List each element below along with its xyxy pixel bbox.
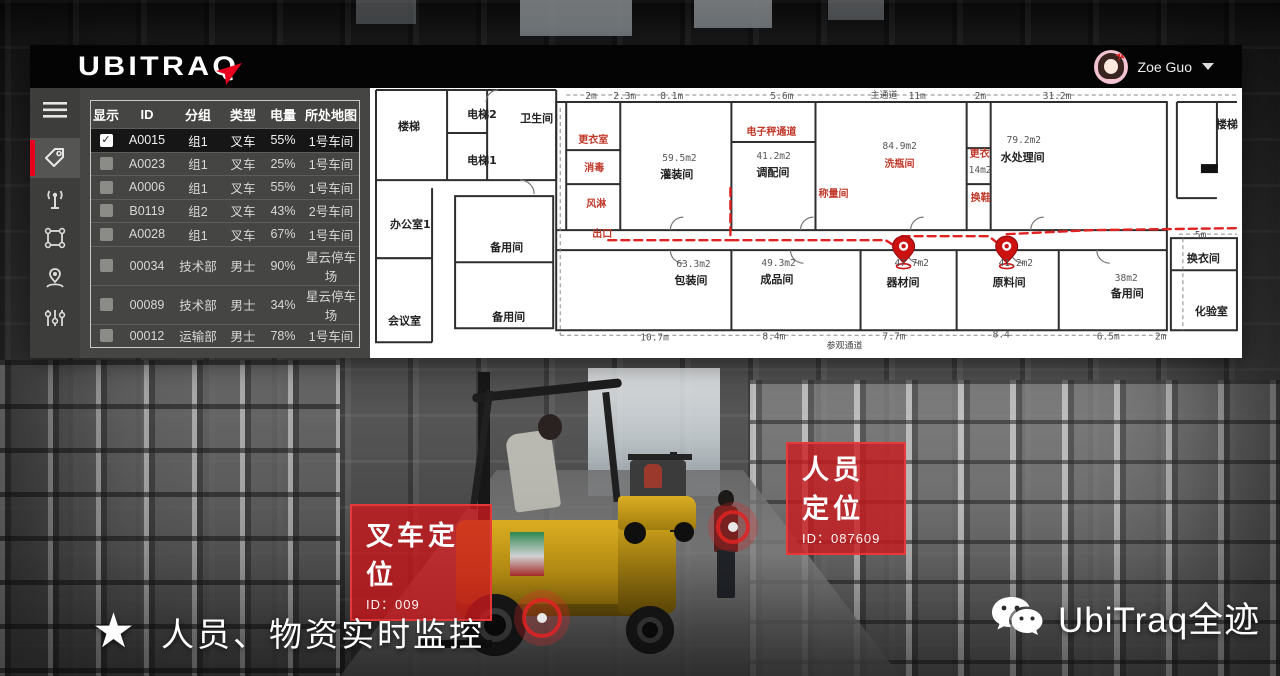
sidebar-item-signal[interactable] [30, 178, 80, 218]
forklift-location-marker [522, 598, 562, 638]
floorplan-label: 14m2 [969, 165, 992, 176]
col-battery: 电量 [263, 105, 303, 124]
floorplan-label: 成品间 [760, 272, 793, 286]
cell-id: B0119 [121, 204, 173, 218]
checkbox-unchecked[interactable] [100, 204, 113, 217]
col-id: ID [121, 107, 173, 122]
floorplan-label: 31.2m [1043, 91, 1072, 102]
floorplan-doors [486, 90, 1110, 263]
floorplan-label: 10.7m [640, 332, 669, 343]
person-tracking-label: 人员定位 ID：087609 [786, 442, 906, 555]
cell-battery: 78% [263, 329, 303, 343]
floorplan-label: 调配间 [756, 165, 789, 179]
tracking-route-path [608, 188, 1237, 250]
checkbox-unchecked[interactable] [100, 157, 113, 170]
user-menu[interactable]: Zoe Guo [1094, 50, 1214, 84]
cell-type: 叉车 [223, 154, 263, 173]
antenna-signal-icon [43, 187, 67, 209]
equalizer-icon [44, 307, 66, 329]
col-display: 显示 [91, 105, 121, 124]
floorplan-label: 79.2m2 [1007, 135, 1041, 146]
table-row[interactable]: A0006组1叉车55%1号车间 [91, 175, 359, 199]
hamburger-icon [43, 102, 67, 118]
floorplan-label: 主通道 [871, 89, 898, 101]
floorplan-label: 更衣 [970, 147, 990, 160]
cell-map: 2号车间 [303, 201, 359, 220]
logo: UBITRAQ [78, 51, 248, 82]
hamburger-menu-button[interactable] [30, 88, 80, 132]
logo-arrow-icon [216, 63, 242, 85]
floorplan-label: 备用间 [489, 240, 523, 254]
cell-id: 00089 [121, 298, 173, 312]
floorplan-svg: 2m2.3m8.1m5.6m主通道11m2m31.2m5m楼梯电梯2电梯1卫生间… [370, 88, 1242, 358]
floorplan-label: 8.4 [993, 329, 1010, 340]
floorplan-label: 2m [1155, 331, 1167, 342]
floorplan-label: 电梯1 [467, 153, 497, 167]
floorplan-label: 电子秤通道 [746, 125, 796, 138]
checkbox-unchecked[interactable] [100, 181, 113, 194]
cell-battery: 55% [263, 180, 303, 194]
table-header: 显示 ID 分组 类型 电量 所处地图 [91, 101, 359, 128]
floorplan-label: 洗瓶间 [885, 157, 915, 170]
cell-map: 星云停车场 [303, 247, 359, 285]
floorplan-label: 11m [909, 91, 926, 102]
floorplan-label: 消毒 [584, 161, 604, 174]
checkbox-unchecked[interactable] [100, 329, 113, 342]
floorplan-label: 电梯2 [467, 107, 497, 121]
table-row[interactable]: ✓A0015组1叉车55%1号车间 [91, 128, 359, 152]
app-window: UBITRAQ Zoe Guo [30, 45, 1242, 358]
cell-type: 叉车 [223, 225, 263, 244]
checkbox-checked[interactable]: ✓ [100, 134, 113, 147]
floorplan-label: 更衣室 [578, 133, 608, 146]
person-tag-id: ID：087609 [802, 528, 890, 547]
person-tag-title: 人员定位 [802, 448, 890, 526]
floorplan-label: 化验室 [1195, 304, 1228, 318]
floorplan-walls [376, 90, 1237, 342]
floorplan-label: 灌装间 [660, 167, 693, 181]
cell-group: 组1 [173, 131, 223, 150]
sidebar-item-zone[interactable] [30, 218, 80, 258]
cell-type: 叉车 [223, 131, 263, 150]
floorplan-label: 原料间 [993, 275, 1026, 289]
floorplan-label: 7.7m [883, 331, 906, 342]
table-row[interactable]: A0028组1叉车67%1号车间 [91, 222, 359, 246]
floorplan-label: 8.4m [762, 331, 785, 342]
cell-group: 技术部 [173, 295, 223, 314]
app-header: UBITRAQ Zoe Guo [30, 45, 1242, 88]
floorplan-label: 出口 [592, 227, 612, 240]
forklift-tag-title: 叉车定位 [366, 514, 476, 592]
floorplan-label: 5.6m [770, 91, 793, 102]
sidebar-item-tag-tracking[interactable] [30, 138, 80, 178]
floorplan-label: 称量间 [818, 187, 848, 200]
floorplan-label: 63.3m2 [676, 259, 710, 270]
cell-id: A0015 [121, 133, 173, 147]
slogan: ★ 人员、物资实时监控 [92, 608, 485, 656]
forklift-tracking-label: 叉车定位 ID：009 [350, 504, 492, 621]
star-icon: ★ [92, 608, 135, 656]
cell-type: 叉车 [223, 178, 263, 197]
checkbox-unchecked[interactable] [100, 298, 113, 311]
col-map: 所处地图 [303, 105, 359, 124]
floorplan-label: 参观通道 [826, 339, 862, 351]
cell-battery: 67% [263, 227, 303, 241]
floorplan-label: 风淋 [586, 197, 606, 210]
cell-battery: 90% [263, 259, 303, 273]
person-pin-icon [43, 267, 67, 289]
floorplan-map[interactable]: 2m2.3m8.1m5.6m主通道11m2m31.2m5m楼梯电梯2电梯1卫生间… [370, 88, 1242, 358]
wechat-icon [990, 595, 1046, 641]
cell-battery: 34% [263, 298, 303, 312]
col-group: 分组 [173, 105, 223, 124]
table-row[interactable]: A0023组1叉车25%1号车间 [91, 152, 359, 176]
cell-id: A0006 [121, 180, 173, 194]
floorplan-label: 38m2 [1115, 273, 1138, 284]
app-body: 显示 ID 分组 类型 电量 所处地图 ✓A0015组1叉车55%1号车间A00… [30, 88, 1242, 358]
floorplan-label: 备用间 [1110, 286, 1144, 300]
floorplan-label: 办公室1 [390, 217, 431, 231]
floorplan-label: 换衣间 [1187, 251, 1220, 265]
floorplan-label: 器材间 [886, 275, 920, 289]
cell-type: 男士 [223, 256, 263, 275]
floorplan-label: 41.2m2 [756, 151, 790, 162]
floorplan-label: 49.3m2 [761, 258, 795, 269]
cell-type: 男士 [223, 326, 263, 345]
table-body: ✓A0015组1叉车55%1号车间A0023组1叉车25%1号车间A0006组1… [91, 128, 359, 347]
cell-id: 00012 [121, 329, 173, 343]
cell-type: 叉车 [223, 201, 263, 220]
brand: UbiTraq全迹 [990, 592, 1260, 643]
cell-id: A0028 [121, 227, 173, 241]
cell-group: 组1 [173, 154, 223, 173]
floorplan-structure [1201, 164, 1218, 173]
sidebar [30, 88, 80, 358]
floorplan-label: 8.1m [660, 91, 683, 102]
floorplan-label: 备用间 [491, 309, 525, 323]
cell-group: 组1 [173, 225, 223, 244]
floorplan-label: 2.3m [613, 91, 636, 102]
floorplan-labels: 2m2.3m8.1m5.6m主通道11m2m31.2m5m楼梯电梯2电梯1卫生间… [388, 89, 1238, 351]
cell-group: 组1 [173, 178, 223, 197]
cell-battery: 55% [263, 133, 303, 147]
table-row[interactable]: 00089技术部男士34%星云停车场 [91, 285, 359, 324]
user-name: Zoe Guo [1138, 59, 1192, 75]
floorplan-label: 41.2m2 [999, 258, 1033, 269]
floorplan-label: 84.9m2 [883, 141, 917, 152]
floorplan-label: 2m [975, 91, 987, 102]
zone-frame-icon [44, 227, 66, 249]
floorplan-label: 59.5m2 [662, 153, 696, 164]
cell-group: 组2 [173, 201, 223, 220]
slogan-text: 人员、物资实时监控 [161, 608, 485, 656]
sidebar-item-person-location[interactable] [30, 258, 80, 298]
floorplan-label: 楼梯 [1216, 117, 1238, 131]
chevron-down-icon[interactable] [1202, 63, 1214, 70]
cell-map: 1号车间 [303, 326, 359, 345]
cell-map: 1号车间 [303, 131, 359, 150]
brand-text: UbiTraq全迹 [1058, 592, 1260, 643]
tag-list-panel: 显示 ID 分组 类型 电量 所处地图 ✓A0015组1叉车55%1号车间A00… [80, 88, 370, 358]
floorplan-label: 47.7m2 [895, 258, 929, 269]
floorplan-label: 2m [585, 91, 597, 102]
person-location-marker [716, 510, 750, 544]
floorplan-label: 6.5m [1097, 331, 1120, 342]
cell-map: 星云停车场 [303, 286, 359, 324]
floorplan-label: 换鞋 [971, 191, 991, 204]
floorplan-label: 会议室 [388, 313, 421, 327]
cell-id: A0023 [121, 157, 173, 171]
sidebar-item-statistics[interactable] [30, 298, 80, 338]
table-row[interactable]: 00012运输部男士78%1号车间 [91, 324, 359, 348]
cell-battery: 43% [263, 204, 303, 218]
cell-type: 男士 [223, 295, 263, 314]
checkbox-unchecked[interactable] [100, 259, 113, 272]
cell-battery: 25% [263, 157, 303, 171]
floorplan-label: 卫生间 [520, 111, 553, 125]
col-type: 类型 [223, 105, 263, 124]
table-row[interactable]: B0119组2叉车43%2号车间 [91, 199, 359, 223]
cell-map: 1号车间 [303, 154, 359, 173]
table-row[interactable]: 00034技术部男士90%星云停车场 [91, 246, 359, 285]
floorplan-label: 楼梯 [398, 119, 420, 133]
floorplan-label: 5m [1195, 230, 1207, 241]
cell-map: 1号车间 [303, 178, 359, 197]
cell-map: 1号车间 [303, 225, 359, 244]
avatar[interactable] [1094, 50, 1128, 84]
cell-group: 运输部 [173, 326, 223, 345]
cell-id: 00034 [121, 259, 173, 273]
tag-icon [44, 147, 66, 169]
stage: UBITRAQ Zoe Guo [0, 0, 1280, 676]
cell-group: 技术部 [173, 256, 223, 275]
tag-table: 显示 ID 分组 类型 电量 所处地图 ✓A0015组1叉车55%1号车间A00… [90, 100, 360, 348]
checkbox-unchecked[interactable] [100, 228, 113, 241]
floorplan-label: 水处理间 [1001, 150, 1045, 164]
floorplan-label: 包装间 [673, 273, 707, 287]
